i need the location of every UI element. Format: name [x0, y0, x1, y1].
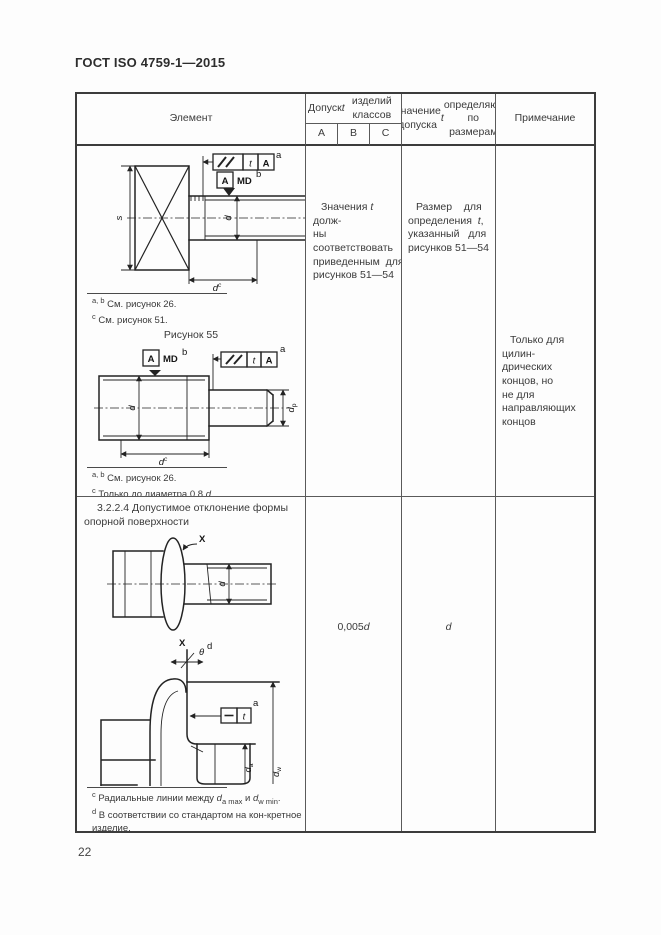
- footnote-mark-a: a: [276, 150, 282, 161]
- col-header-class-c: С: [370, 124, 402, 146]
- dim-label-d: d: [223, 215, 234, 221]
- document-code: ГОСТ ISO 4759-1—2015: [75, 55, 225, 70]
- bearing-surface-outline: [187, 650, 279, 752]
- angle-annotation: θ d: [171, 641, 212, 668]
- col-header-value: Значение допускаt определяют поразмерам: [402, 94, 496, 146]
- footnote-mark-b: b: [256, 169, 261, 180]
- cell-tolerance-row1: Значения t долж-ны соответствоватьпривед…: [306, 146, 402, 497]
- md-label: MD: [163, 354, 178, 365]
- tolerance-table: Элемент Допуск t для изделийклассов точн…: [75, 92, 596, 833]
- col-header-class-a: А: [306, 124, 338, 146]
- datum-triangle-icon: [149, 370, 161, 376]
- tolerance-frame: t A a: [203, 150, 282, 196]
- cell-note-row2: [496, 497, 594, 831]
- cell-value-row1: Размер дляопределения t,указанный длярис…: [402, 146, 496, 497]
- shaft-outline: [107, 564, 277, 604]
- tolerance-symbol-t: t: [243, 712, 246, 723]
- dimension-da: dа: [243, 744, 255, 784]
- datum-md-label: A MD b: [143, 347, 187, 376]
- datum-triangle-icon: [223, 188, 235, 196]
- dim-label-d: d: [217, 581, 228, 587]
- datum-box-a: A: [222, 176, 229, 187]
- footnote-rule: [87, 467, 227, 468]
- dimension-d: d: [127, 376, 139, 440]
- angle-label-theta: θ: [199, 647, 205, 658]
- datum-box-a: A: [148, 354, 155, 365]
- dim-label-d: d: [127, 404, 138, 410]
- section-3224-text: 3.2.2.4 Допустимое отклонение формы опор…: [77, 497, 305, 529]
- mating-part-outline: [197, 744, 250, 784]
- datum-letter: A: [266, 355, 273, 366]
- figure-56-drawing: A MD b t A a: [91, 346, 306, 466]
- footnote-mark-a: a: [253, 698, 259, 709]
- dimension-dc: dc: [121, 440, 209, 466]
- footnote-mark-b: b: [182, 347, 187, 358]
- detail-x-label: X: [199, 534, 206, 545]
- total-runout-icon: [226, 355, 242, 364]
- detail-x-callout: X: [183, 534, 206, 550]
- dimension-dw: dw: [271, 682, 283, 784]
- cell-value-row2: d: [402, 497, 496, 831]
- dim-label-dc: dc: [159, 456, 168, 466]
- dim-label-dp: dp: [286, 403, 298, 412]
- md-label: MD: [237, 176, 252, 187]
- footnote-mark-d: d: [207, 641, 212, 652]
- col-header-note: Примечание: [496, 94, 594, 146]
- datum-md-label: A MD b: [217, 169, 261, 196]
- col-header-class-b: В: [338, 124, 370, 146]
- cell-element-row1: t A a A MD b: [77, 146, 306, 497]
- figure-57-bolt-drawing: X d: [107, 531, 282, 633]
- col-header-tolerance: Допуск t для изделийклассов точности: [306, 94, 402, 124]
- dim-label-dc: dc: [213, 282, 222, 292]
- detail-x-label: X: [179, 638, 186, 649]
- document-page: ГОСТ ISO 4759-1—2015 Элемент Допуск t дл…: [0, 0, 661, 935]
- dim-label-s: s: [117, 215, 125, 220]
- flange-section-outline: [101, 679, 186, 786]
- cell-note-row1: Только для цилин-дрических концов, ноне …: [496, 146, 594, 497]
- footnote-rule: [87, 787, 227, 788]
- figure-57-footnotes: с Радиальные линии между dа max и dw min…: [77, 790, 305, 831]
- cell-element-row2: 3.2.2.4 Допустимое отклонение формы опор…: [77, 497, 306, 831]
- dimension-d: d: [217, 564, 229, 604]
- tolerance-frame: t a: [190, 698, 259, 723]
- datum-letter: A: [263, 159, 270, 170]
- figure-56-footnotes: а, b См. рисунок 26.с Только до диаметра…: [77, 470, 305, 497]
- shaft-outline: [94, 376, 289, 440]
- cell-tolerance-row2: 0,005d: [306, 497, 402, 831]
- dimension-dc: dc: [189, 240, 257, 292]
- figure-55-drawing: t A a A MD b: [117, 150, 306, 292]
- total-runout-icon: [218, 157, 234, 167]
- footnote-mark-a: a: [280, 346, 286, 355]
- col-header-element: Элемент: [77, 94, 306, 146]
- tolerance-symbol-t: t: [253, 355, 256, 366]
- figure-57-detail-drawing: X θ d: [93, 634, 298, 786]
- leader-arrow: [183, 544, 197, 550]
- footnote-rule: [87, 293, 227, 294]
- page-number: 22: [78, 845, 91, 859]
- figure-55-caption: Рисунок 55: [77, 329, 305, 343]
- tolerance-symbol-t: t: [249, 159, 252, 170]
- tolerance-frame: t A a: [213, 346, 286, 390]
- figure-55-footnotes: а, b См. рисунок 26.с См. рисунок 51.: [77, 296, 305, 328]
